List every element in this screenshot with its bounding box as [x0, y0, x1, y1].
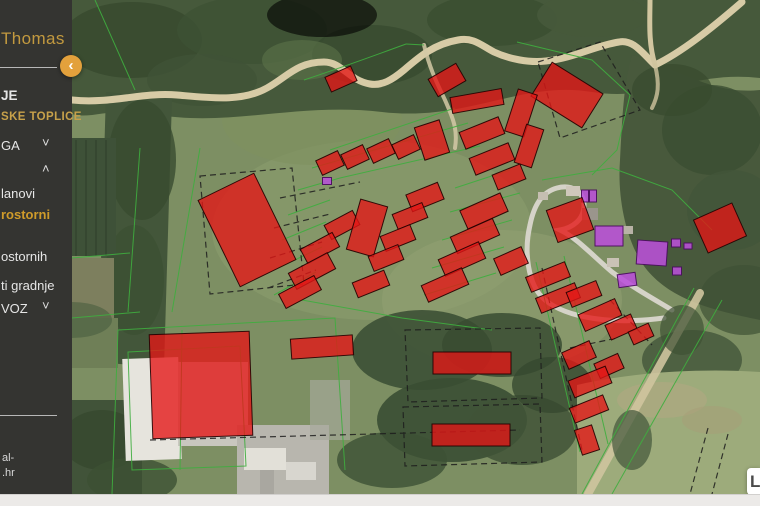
- legal-building-polygon[interactable]: [636, 240, 668, 266]
- illegal-building-polygon[interactable]: [290, 335, 353, 359]
- sidebar-item-toplice[interactable]: SKE TOPLICE: [1, 111, 82, 123]
- sidebar-item-naselje[interactable]: JE: [1, 88, 18, 103]
- sidebar-item-prostorni-active[interactable]: rostorni: [1, 207, 50, 222]
- app-logo: Thomas: [1, 29, 65, 49]
- legal-building-polygon[interactable]: [673, 267, 682, 275]
- sidebar-item-izvoz[interactable]: VOZ ˅: [1, 301, 28, 316]
- sidebar-footer-line: al-: [2, 452, 14, 464]
- illegal-building-polygon[interactable]: [149, 331, 253, 438]
- illegal-building-polygon[interactable]: [432, 424, 510, 446]
- legal-building-polygon[interactable]: [617, 272, 637, 287]
- legal-building-polygon[interactable]: [672, 239, 681, 247]
- map-viewport[interactable]: L: [72, 0, 760, 494]
- chevron-down-icon: ˅: [42, 298, 50, 313]
- legal-building-polygon[interactable]: [595, 226, 623, 246]
- leaflet-attribution-label: L: [747, 472, 760, 492]
- chevron-up-icon: ˄: [42, 161, 50, 176]
- sidebar-item-ga[interactable]: GA ˅: [1, 138, 20, 153]
- chevron-left-icon: ‹: [69, 58, 74, 73]
- bottom-strip: [0, 494, 760, 506]
- app-window: L Thomas JE SKE TOPLICE GA ˅ ˄ lanovi ro…: [0, 0, 760, 506]
- leaflet-attribution[interactable]: L: [747, 468, 760, 494]
- satellite-map: [72, 0, 760, 494]
- legal-building-polygon[interactable]: [323, 178, 332, 185]
- sidebar-divider: [0, 415, 57, 416]
- legal-building-polygon[interactable]: [590, 190, 597, 202]
- sidebar-item-planovi[interactable]: lanovi: [1, 186, 35, 201]
- legal-building-polygon[interactable]: [684, 243, 692, 249]
- sidebar-item-gradnje[interactable]: ti gradnje: [1, 278, 54, 293]
- sidebar-divider: [0, 67, 57, 68]
- chevron-down-icon: ˅: [42, 135, 50, 150]
- illegal-building-polygon[interactable]: [433, 352, 511, 374]
- sidebar-footer-line: .hr: [2, 467, 15, 479]
- sidebar-item-prostornih[interactable]: ostornih: [1, 249, 47, 264]
- sidebar-collapse-button[interactable]: ‹: [60, 55, 82, 77]
- sidebar: Thomas JE SKE TOPLICE GA ˅ ˄ lanovi rost…: [0, 0, 72, 494]
